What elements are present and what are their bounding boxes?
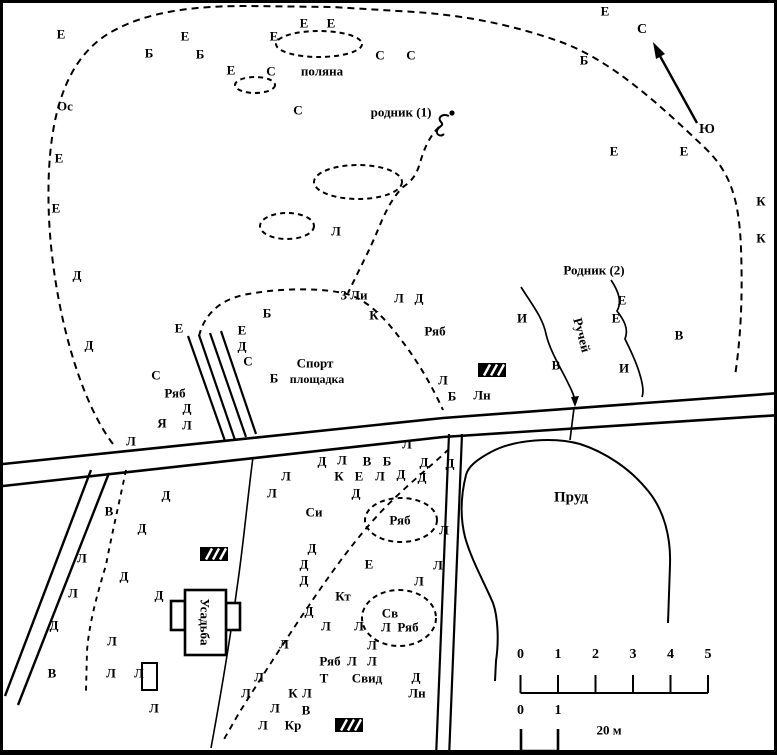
tree-label: К <box>334 470 343 483</box>
tree-label: Л <box>381 621 391 634</box>
tree-label: Д <box>238 340 247 353</box>
tree-label: Л <box>68 587 78 600</box>
grove-ellipse <box>314 165 402 199</box>
tree-label: Л <box>126 435 136 448</box>
tree-label: Лн <box>408 687 425 700</box>
tree-label: Л <box>270 702 280 715</box>
scale-tick-number: 2 <box>592 648 599 662</box>
pond-outline <box>462 440 670 681</box>
tree-label: В <box>302 704 311 717</box>
tree-label: Д <box>305 605 314 618</box>
tree-label: Е <box>238 324 247 337</box>
tree-label: Д <box>300 574 309 587</box>
north-arrow-icon <box>653 42 697 123</box>
tree-label: Л <box>433 559 443 572</box>
scale-tick-number: 0 <box>517 704 524 718</box>
tree-label: Б <box>270 372 279 385</box>
tree-label: В <box>675 329 684 342</box>
tree-label: Д <box>318 455 327 468</box>
compass-south-label: Ю <box>699 123 715 137</box>
tree-label: Б <box>580 54 589 67</box>
tree-label: Д <box>183 402 192 415</box>
tree-label: К <box>756 195 765 208</box>
tree-label: Д <box>155 589 164 602</box>
scale-tick-number: 1 <box>555 648 562 662</box>
scale-tick-number: 3 <box>630 648 637 662</box>
tree-label: Д <box>162 489 171 502</box>
tree-label: Е <box>300 17 309 30</box>
tree-label: Е <box>270 30 279 43</box>
tree-label: К <box>369 309 378 322</box>
scale-tick-number: 4 <box>667 648 674 662</box>
scale-bar <box>521 675 709 751</box>
tree-label: Л <box>267 487 277 500</box>
tree-label: Л <box>258 719 268 732</box>
tree-label: Д <box>300 558 309 571</box>
tree-label: Ряб <box>397 621 418 634</box>
tree-label: Л <box>337 454 347 467</box>
tree-label: И <box>517 312 527 325</box>
tree-label: Б <box>196 48 205 61</box>
tree-label: Е <box>365 558 374 571</box>
tree-label: Е <box>612 312 621 325</box>
pond-label: Пруд <box>554 491 588 506</box>
tree-label: Е <box>610 145 619 158</box>
spring1-path <box>348 127 439 293</box>
tree-label: Л <box>439 524 449 537</box>
tree-label: Д <box>138 522 147 535</box>
tree-label: Ряб <box>424 325 445 338</box>
tree-label: Кт <box>335 590 351 603</box>
tree-label: Л <box>367 639 377 652</box>
tree-label: Д <box>85 339 94 352</box>
tree-label: Л <box>321 620 331 633</box>
tree-label: Ряб <box>319 655 340 668</box>
tree-label: В <box>363 455 372 468</box>
three-lindens-label: 3 Ли <box>341 289 368 302</box>
tree-label: Е <box>175 322 184 335</box>
tree-label: Д <box>412 671 421 684</box>
main-road <box>3 393 777 486</box>
tree-label: Л <box>134 667 144 680</box>
tree-label: Св <box>382 607 398 620</box>
tree-label: Ряб <box>389 514 410 527</box>
tree-label: Л <box>77 552 87 565</box>
tree-label: Л <box>394 292 404 305</box>
tree-label: Е <box>680 145 689 158</box>
tree-label: Л <box>375 470 385 483</box>
tree-label: Д <box>50 619 59 632</box>
estate-buildings <box>142 590 240 690</box>
tree-label: Л <box>279 638 289 651</box>
scale-tick-number: 5 <box>705 648 712 662</box>
scale-unit-label: 20 м <box>596 724 621 737</box>
tree-label: Д <box>420 456 429 469</box>
tree-label: Л <box>438 374 448 387</box>
tree-label: Л <box>331 225 341 238</box>
tree-label: Лн <box>473 389 490 402</box>
tree-label: К <box>756 232 765 245</box>
tree-label: Е <box>355 470 364 483</box>
tree-label: Л <box>367 655 377 668</box>
grove-ellipse <box>235 77 275 93</box>
tree-label: С <box>151 369 160 382</box>
tree-label: Л <box>182 419 192 432</box>
tree-label: С <box>293 104 302 117</box>
tree-label: Си <box>306 506 323 519</box>
tree-label: Е <box>618 294 627 307</box>
tree-label: Д <box>415 292 424 305</box>
tree-label: Д <box>352 487 361 500</box>
tree-label: С <box>406 49 415 62</box>
tree-label: Л <box>402 438 412 451</box>
scale-tick-number: 1 <box>555 704 562 718</box>
tree-label: Б <box>145 47 154 60</box>
tree-label: Л <box>302 687 312 700</box>
tree-label: Е <box>181 30 190 43</box>
tree-label: Д <box>418 471 427 484</box>
clearing-label: поляна <box>301 65 343 78</box>
spring2-label: Родник (2) <box>563 264 624 277</box>
tree-label: Л <box>107 635 117 648</box>
tree-label: Л <box>414 575 424 588</box>
tree-label: В <box>48 667 57 680</box>
tree-label: Ос <box>57 100 73 113</box>
tree-label: Д <box>446 457 455 470</box>
tree-label: Д <box>73 269 82 282</box>
tree-label: Л <box>281 470 291 483</box>
tree-label: В <box>105 505 114 518</box>
compass-north-label: С <box>637 23 647 37</box>
tree-label: Т <box>320 672 329 685</box>
clearing-ellipse <box>276 31 362 57</box>
tree-label: Е <box>57 28 66 41</box>
tree-label: В <box>552 359 561 372</box>
tree-label: Л <box>149 702 159 715</box>
tree-label: Е <box>327 17 336 30</box>
scale-tick-number: 0 <box>517 648 524 662</box>
sports-ground-label-line2: площадка <box>290 373 345 385</box>
tree-label: Е <box>52 202 61 215</box>
tree-label: Е <box>55 152 64 165</box>
tree-label: Д <box>308 542 317 555</box>
tree-label: Я <box>157 417 166 430</box>
spring1-icon <box>437 110 455 135</box>
tree-label: Д <box>120 570 129 583</box>
tree-label: Л <box>241 687 251 700</box>
tree-label: Е <box>601 5 610 18</box>
tree-label: С <box>266 65 275 78</box>
tree-label: С <box>375 49 384 62</box>
tree-label: Д <box>397 468 406 481</box>
tree-label: С <box>243 355 252 368</box>
tree-label: Б <box>448 390 457 403</box>
tree-label: Л <box>254 671 264 684</box>
sports-ground-label-line1: Спорт <box>297 357 334 370</box>
vertical-road <box>436 434 462 755</box>
tree-label: К <box>288 687 297 700</box>
tree-label: Б <box>263 307 272 320</box>
tree-label: Свид <box>352 672 382 685</box>
branch-road <box>5 470 109 705</box>
site-map: поляна родник (1) Родник (2) Ручей Спорт… <box>0 0 777 755</box>
tree-label: Кр <box>285 719 302 732</box>
tree-label: Л <box>106 667 116 680</box>
sports-ground-boundary <box>199 289 443 410</box>
tree-label: Е <box>227 64 236 77</box>
spring1-label: родник (1) <box>371 106 432 119</box>
grove-ellipse <box>260 213 314 239</box>
tree-label: Б <box>383 455 392 468</box>
tree-label: И <box>619 362 629 375</box>
tree-label: Л <box>347 655 357 668</box>
estate-label: Усадьба <box>199 598 212 645</box>
tree-label: Л <box>354 620 364 633</box>
tree-label: Ряб <box>164 387 185 400</box>
